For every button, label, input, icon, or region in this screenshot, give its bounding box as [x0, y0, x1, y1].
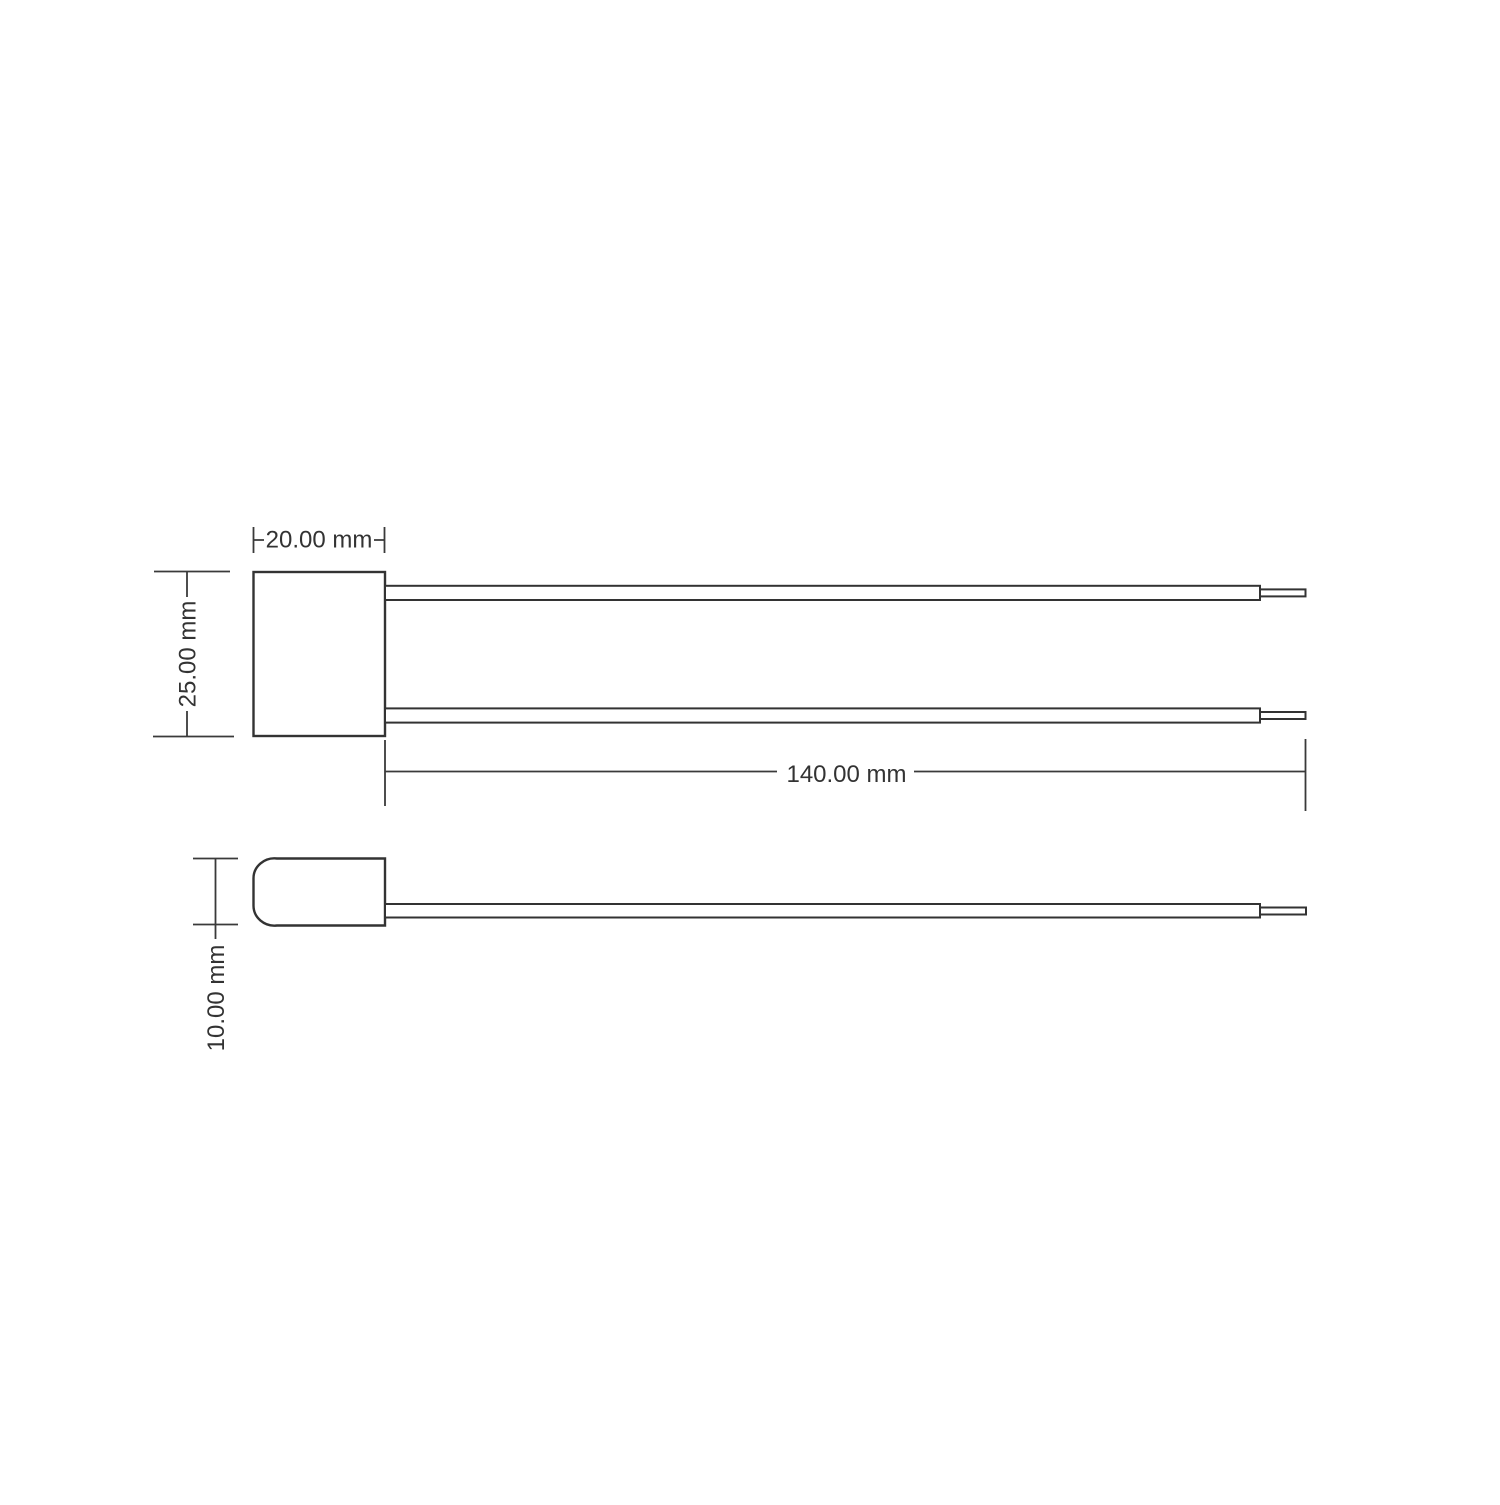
- svg-text:10.00 mm: 10.00 mm: [203, 945, 230, 1052]
- svg-text:140.00 mm: 140.00 mm: [786, 761, 906, 788]
- svg-text:20.00 mm: 20.00 mm: [266, 527, 373, 554]
- svg-text:25.00 mm: 25.00 mm: [175, 601, 202, 708]
